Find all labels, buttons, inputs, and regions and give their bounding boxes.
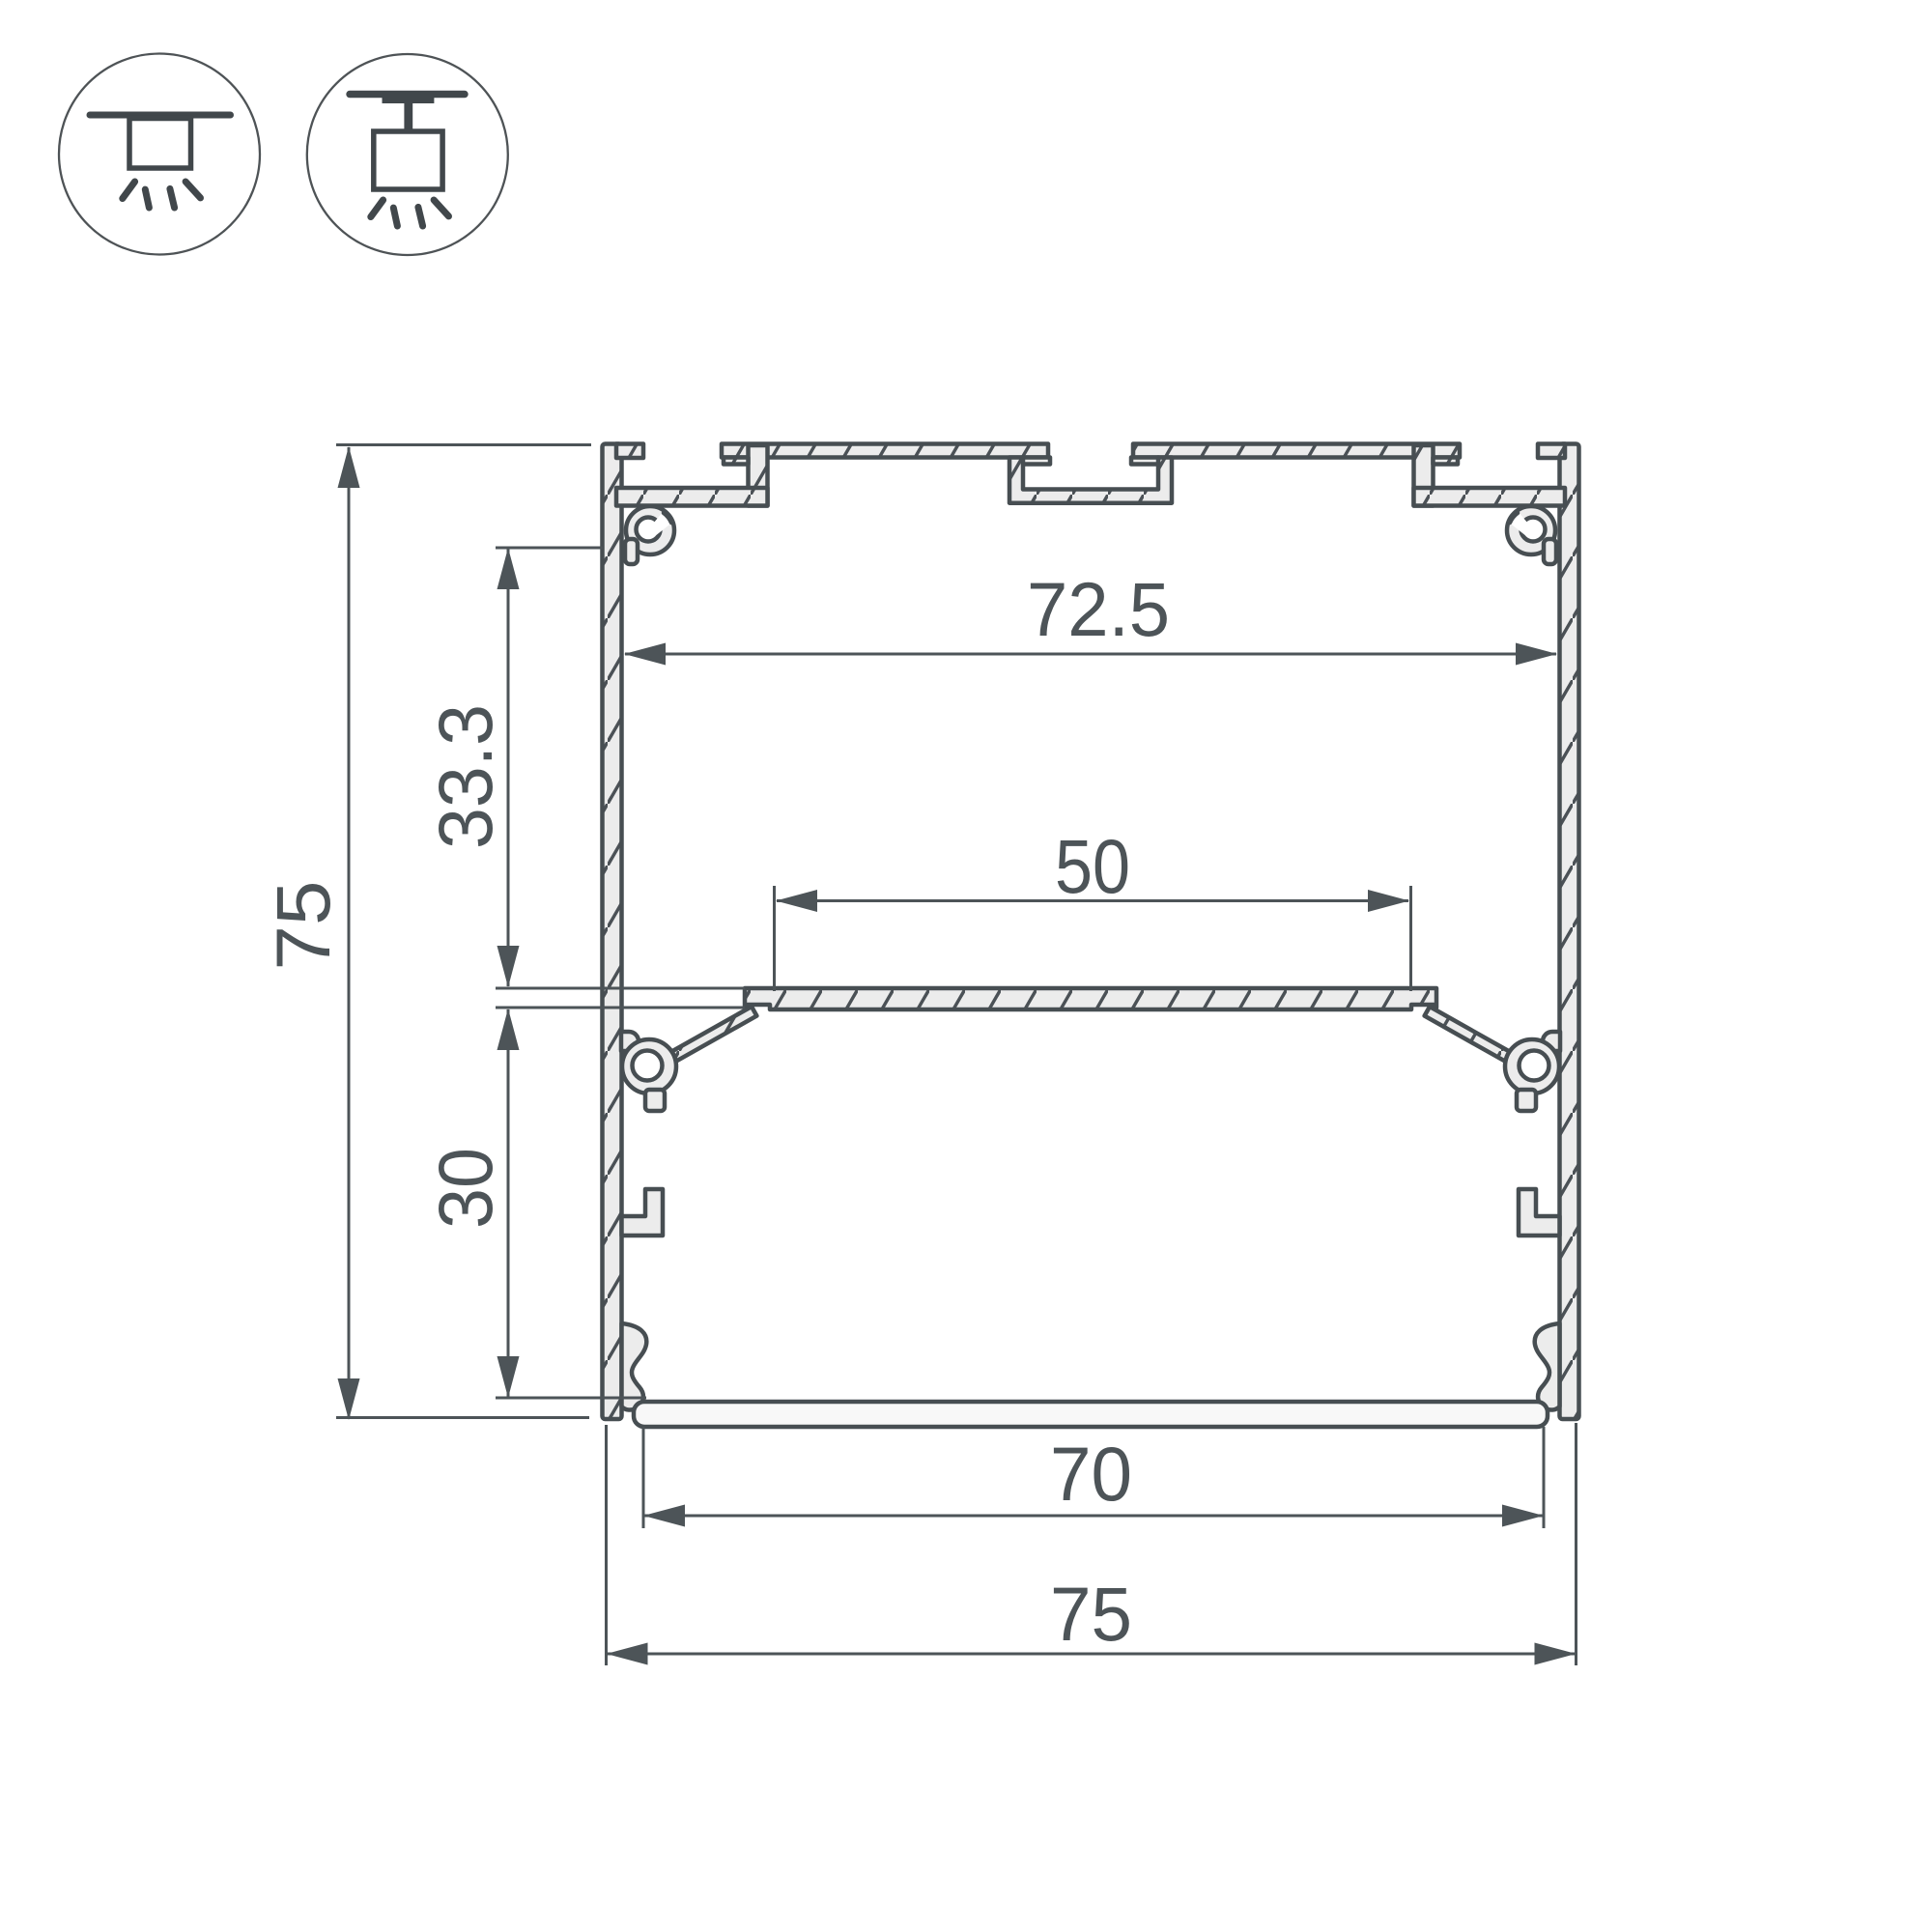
svg-text:30: 30 — [422, 1148, 508, 1229]
svg-text:33.3: 33.3 — [422, 704, 508, 849]
svg-text:75: 75 — [1050, 1571, 1132, 1657]
svg-text:50: 50 — [1055, 823, 1130, 909]
svg-text:75: 75 — [260, 881, 346, 971]
svg-text:70: 70 — [1050, 1431, 1132, 1517]
svg-text:72.5: 72.5 — [1027, 566, 1170, 652]
